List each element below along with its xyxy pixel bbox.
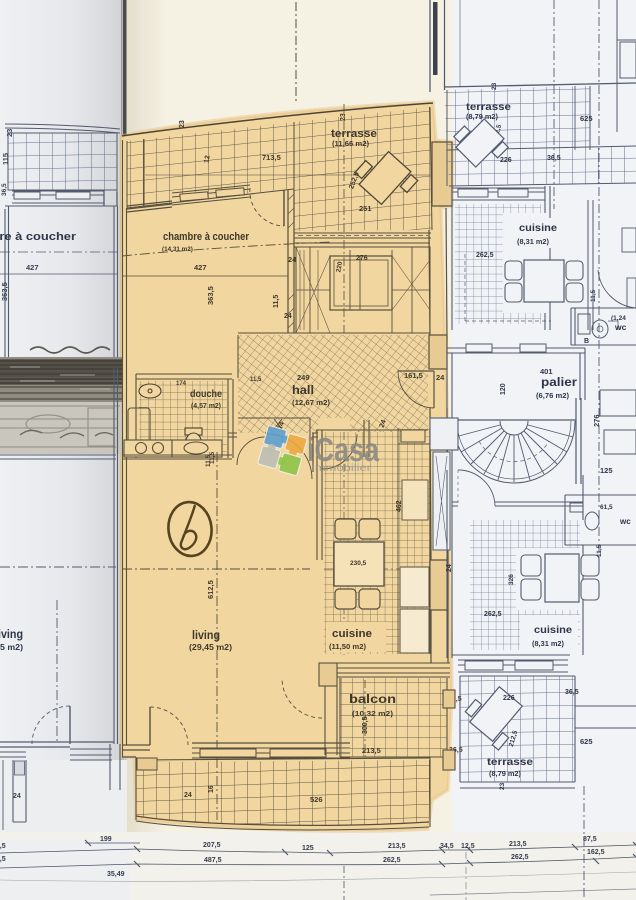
svg-text:(10,32 m2): (10,32 m2)	[352, 709, 394, 718]
svg-text:douche: douche	[190, 388, 222, 400]
svg-text:B: B	[584, 338, 589, 345]
svg-text:cuisine: cuisine	[332, 628, 372, 640]
svg-text:(12,67 m2): (12,67 m2)	[292, 398, 331, 407]
svg-text:immobilier: immobilier	[312, 462, 372, 474]
svg-text:23: 23	[499, 782, 506, 790]
svg-text:11,5: 11,5	[209, 451, 216, 464]
svg-text:125: 125	[302, 845, 314, 852]
svg-text:625: 625	[580, 737, 593, 746]
svg-text:24: 24	[184, 792, 192, 799]
svg-text:terrasse: terrasse	[487, 756, 533, 768]
svg-text:(8,79 m2): (8,79 m2)	[489, 771, 521, 778]
svg-text:199: 199	[100, 836, 112, 843]
svg-text:23: 23	[5, 129, 14, 137]
svg-text:living: living	[192, 628, 220, 642]
svg-text:262,5: 262,5	[511, 854, 529, 861]
svg-text:23: 23	[340, 113, 347, 121]
svg-text:713,5: 713,5	[262, 153, 281, 162]
svg-text:36,5: 36,5	[0, 856, 6, 863]
svg-text:487,5: 487,5	[204, 857, 222, 864]
svg-text:12,5: 12,5	[461, 843, 475, 850]
svg-text:mbre à coucher: mbre à coucher	[0, 231, 77, 243]
svg-text:427: 427	[26, 263, 39, 272]
svg-text:balcon: balcon	[349, 692, 396, 706]
svg-text:401: 401	[540, 367, 553, 376]
svg-text:462: 462	[396, 500, 403, 512]
svg-text:24: 24	[446, 564, 453, 572]
svg-text:(29,45 m2): (29,45 m2)	[0, 643, 23, 652]
svg-text:(4,57 m2): (4,57 m2)	[191, 403, 221, 410]
svg-text:34,5: 34,5	[440, 843, 454, 850]
svg-text:11,5: 11,5	[273, 295, 280, 308]
svg-text:115: 115	[1, 153, 10, 165]
svg-text:213,5: 213,5	[509, 841, 527, 848]
svg-text:cuisine: cuisine	[534, 624, 572, 636]
svg-text:526: 526	[310, 795, 323, 804]
svg-text:(8,31 m2): (8,31 m2)	[517, 239, 549, 246]
svg-text:87,5: 87,5	[583, 836, 597, 843]
svg-text:11,5: 11,5	[596, 544, 603, 557]
svg-text:326: 326	[508, 574, 515, 585]
svg-text:363,5: 363,5	[206, 286, 215, 305]
svg-text:161,5: 161,5	[404, 371, 423, 380]
svg-text:36,5: 36,5	[0, 843, 6, 850]
svg-text:125: 125	[600, 466, 613, 475]
svg-text:36,5: 36,5	[1, 183, 8, 196]
svg-text:wc: wc	[619, 517, 631, 526]
svg-text:palier: palier	[541, 375, 577, 389]
svg-text:24: 24	[13, 793, 21, 800]
svg-text:174: 174	[176, 381, 187, 387]
svg-text:276: 276	[356, 255, 368, 262]
svg-text:36,5: 36,5	[565, 689, 579, 696]
svg-text:(8,79 m2): (8,79 m2)	[466, 114, 498, 121]
svg-text:terrasse: terrasse	[466, 101, 511, 113]
svg-text:(29,45 m2): (29,45 m2)	[189, 643, 232, 652]
svg-text:363,5: 363,5	[0, 282, 9, 301]
svg-text:262,5: 262,5	[476, 252, 494, 259]
svg-text:226: 226	[503, 695, 515, 702]
svg-text:23: 23	[491, 82, 498, 90]
svg-text:36,5: 36,5	[547, 155, 561, 162]
svg-text:61,5: 61,5	[600, 504, 613, 511]
svg-text:24: 24	[284, 313, 292, 320]
svg-text:35,49: 35,49	[107, 871, 125, 878]
svg-text:230,5: 230,5	[350, 560, 367, 567]
svg-text:625: 625	[580, 114, 593, 123]
svg-text:12: 12	[204, 155, 212, 164]
svg-text:262,5: 262,5	[383, 857, 401, 864]
svg-text:chambre à coucher: chambre à coucher	[163, 231, 250, 243]
svg-text:162,5: 162,5	[587, 849, 605, 856]
svg-text:wc: wc	[614, 322, 627, 332]
svg-text:23: 23	[179, 120, 186, 128]
svg-text:213,5: 213,5	[388, 843, 406, 850]
svg-text:cuisine: cuisine	[519, 222, 557, 234]
svg-text:427: 427	[194, 263, 207, 272]
svg-text:262,5: 262,5	[484, 611, 502, 618]
svg-text:terrasse: terrasse	[331, 128, 377, 140]
svg-text:207,5: 207,5	[203, 842, 221, 849]
svg-text:251: 251	[359, 204, 372, 213]
svg-text:16: 16	[208, 785, 215, 793]
svg-text:(11,50 m2): (11,50 m2)	[329, 642, 367, 651]
svg-text:226: 226	[500, 157, 512, 164]
svg-text:(8,31 m2): (8,31 m2)	[532, 641, 564, 648]
svg-text:120: 120	[500, 383, 507, 395]
svg-text:(1,24: (1,24	[611, 315, 626, 322]
svg-text:(11,66 m2): (11,66 m2)	[332, 141, 369, 148]
svg-text:249: 249	[297, 373, 310, 382]
svg-text:300,5: 300,5	[362, 716, 369, 734]
svg-text:(6,76 m2): (6,76 m2)	[536, 391, 569, 400]
svg-text:24: 24	[436, 373, 445, 382]
svg-text:612,5: 612,5	[206, 580, 215, 599]
svg-text:living: living	[0, 627, 23, 641]
svg-text:11,5: 11,5	[250, 377, 262, 383]
svg-text:hall: hall	[292, 383, 314, 397]
